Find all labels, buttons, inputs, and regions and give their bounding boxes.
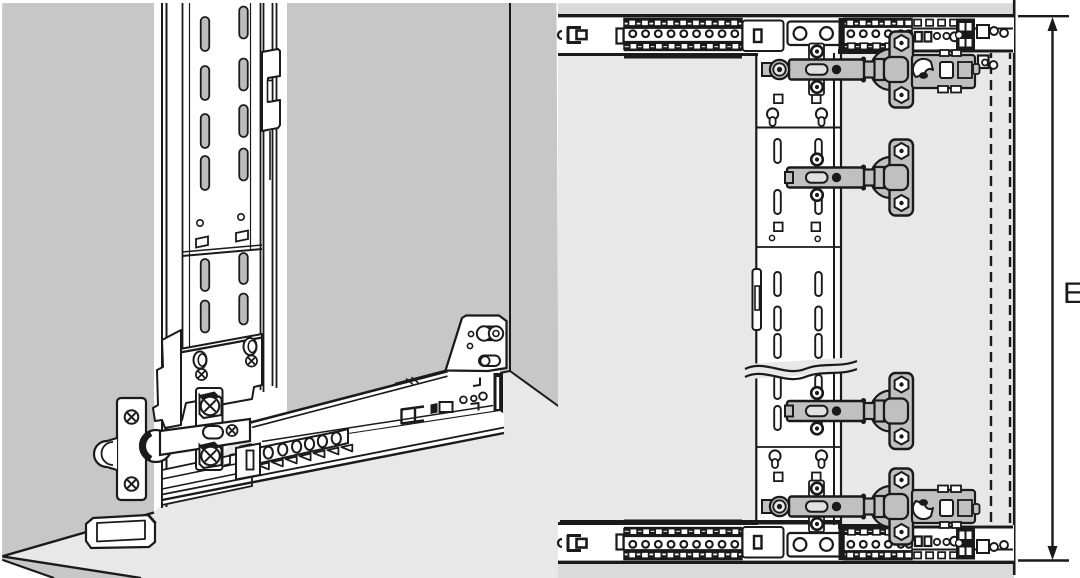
svg-text:E: E xyxy=(1063,277,1080,310)
